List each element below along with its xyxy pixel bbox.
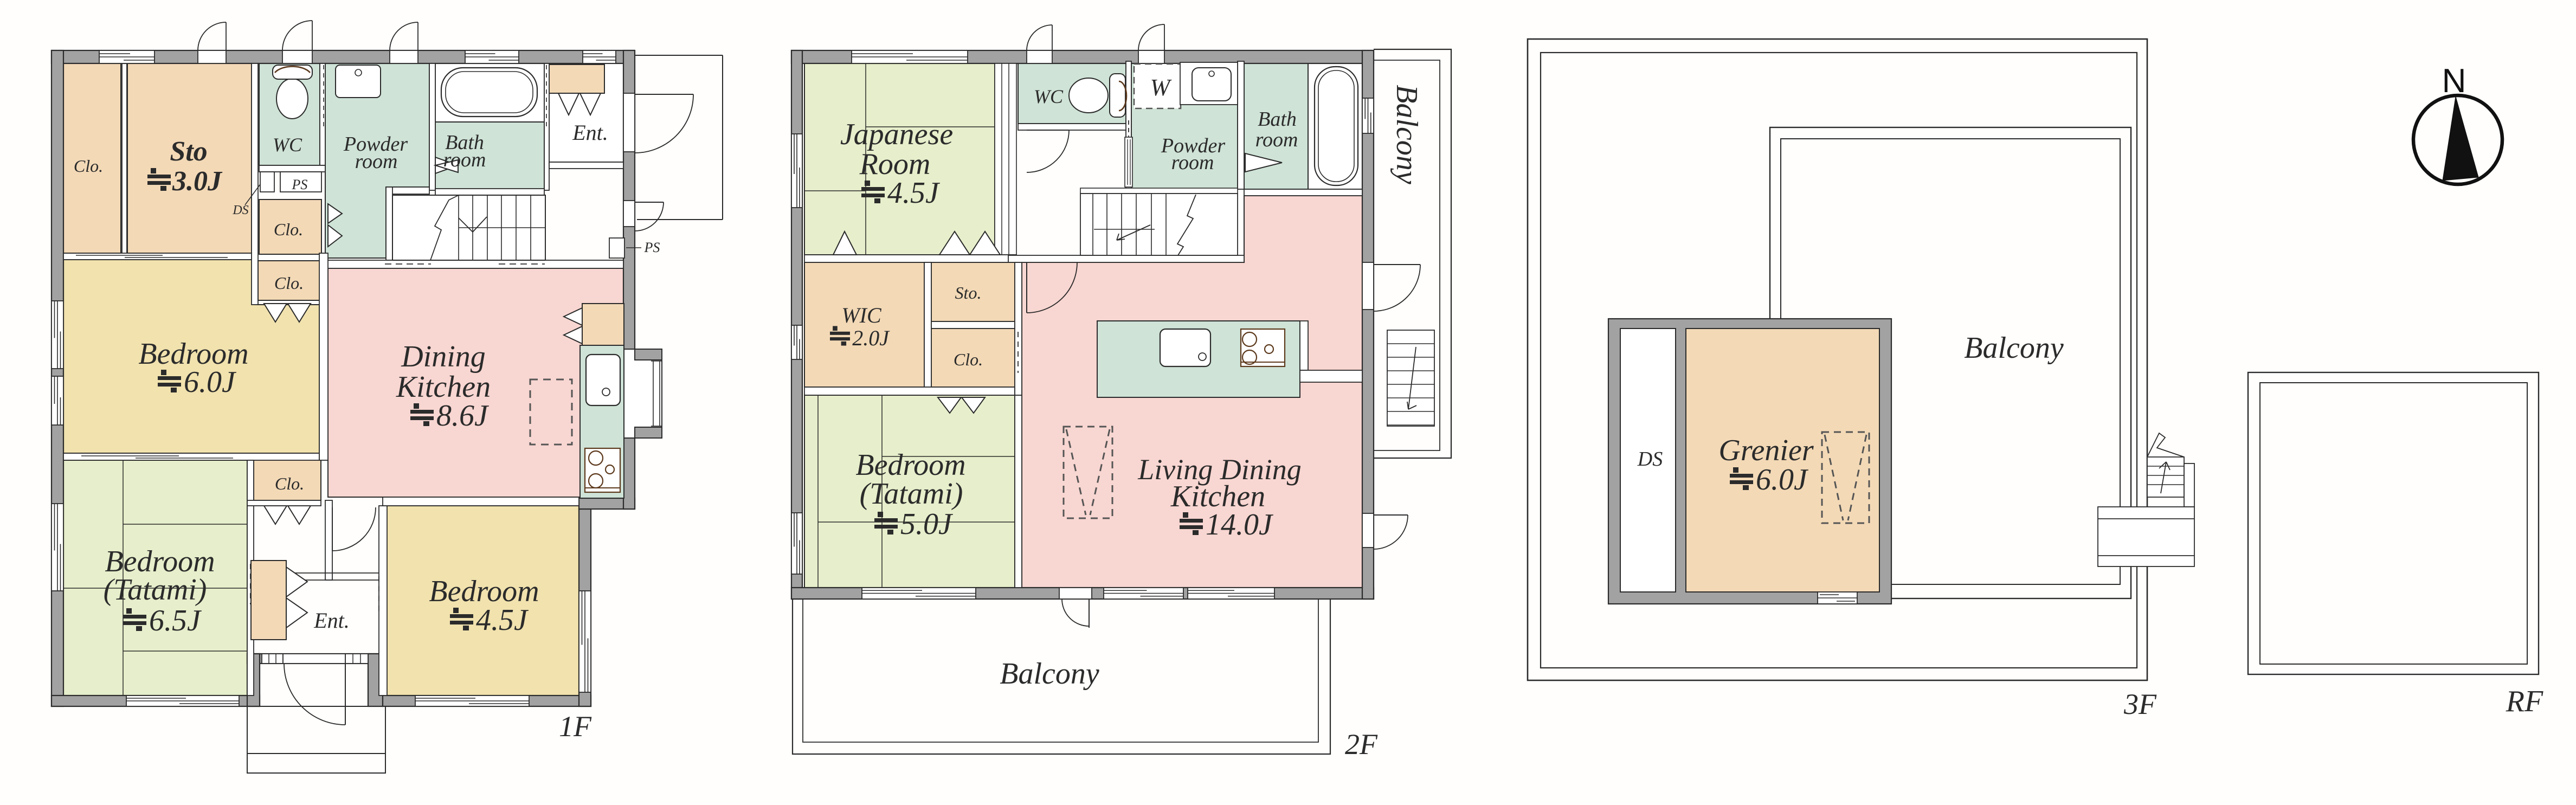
svg-text:DS: DS xyxy=(232,203,248,217)
svg-text:Ent.: Ent. xyxy=(572,120,608,145)
svg-text:WC: WC xyxy=(1034,86,1064,107)
svg-text:Japanese: Japanese xyxy=(840,118,953,151)
svg-text:Clo.: Clo. xyxy=(74,156,103,176)
svg-text:RF: RF xyxy=(2506,685,2543,718)
svg-text:3.0J: 3.0J xyxy=(172,166,223,197)
svg-text:PS: PS xyxy=(292,177,308,192)
svg-text:Grenier: Grenier xyxy=(1718,434,1813,467)
svg-text:Bath: Bath xyxy=(1258,108,1297,131)
svg-text:Balcony: Balcony xyxy=(1000,657,1099,691)
svg-text:14.0J: 14.0J xyxy=(1206,508,1274,542)
svg-text:N: N xyxy=(2442,62,2466,100)
svg-text:4.5J: 4.5J xyxy=(476,603,529,637)
svg-text:5.0J: 5.0J xyxy=(900,507,954,541)
svg-text:Sto.: Sto. xyxy=(955,283,982,302)
svg-text:WC: WC xyxy=(273,134,302,156)
svg-text:PS: PS xyxy=(644,240,660,255)
svg-text:4.5J: 4.5J xyxy=(887,176,941,210)
svg-text:6.0J: 6.0J xyxy=(184,365,237,399)
svg-text:Clo.: Clo. xyxy=(954,350,983,369)
svg-text:Ent.: Ent. xyxy=(313,608,350,633)
svg-text:W: W xyxy=(1150,74,1172,101)
svg-text:Sto: Sto xyxy=(170,136,207,167)
svg-text:6.0J: 6.0J xyxy=(1756,463,1809,497)
svg-text:room: room xyxy=(443,149,486,171)
svg-text:3F: 3F xyxy=(2123,688,2157,720)
svg-text:DS: DS xyxy=(1637,448,1663,471)
svg-text:Clo.: Clo. xyxy=(275,474,304,493)
svg-text:Balcony: Balcony xyxy=(1390,85,1424,184)
svg-text:Balcony: Balcony xyxy=(1964,331,2064,365)
svg-text:Dining: Dining xyxy=(401,340,486,373)
svg-text:room: room xyxy=(1171,151,1214,174)
svg-text:2F: 2F xyxy=(1345,728,1378,761)
svg-text:WIC: WIC xyxy=(841,303,882,327)
svg-text:(Tatami): (Tatami) xyxy=(104,573,207,607)
svg-text:Clo.: Clo. xyxy=(274,273,304,293)
svg-text:2.0J: 2.0J xyxy=(852,326,890,350)
svg-text:room: room xyxy=(355,150,398,173)
svg-text:Clo.: Clo. xyxy=(274,220,303,239)
svg-text:room: room xyxy=(1255,128,1298,151)
svg-text:1F: 1F xyxy=(559,710,592,743)
svg-text:8.6J: 8.6J xyxy=(436,399,490,433)
svg-text:6.5J: 6.5J xyxy=(149,604,202,637)
svg-text:(Tatami): (Tatami) xyxy=(860,477,963,511)
